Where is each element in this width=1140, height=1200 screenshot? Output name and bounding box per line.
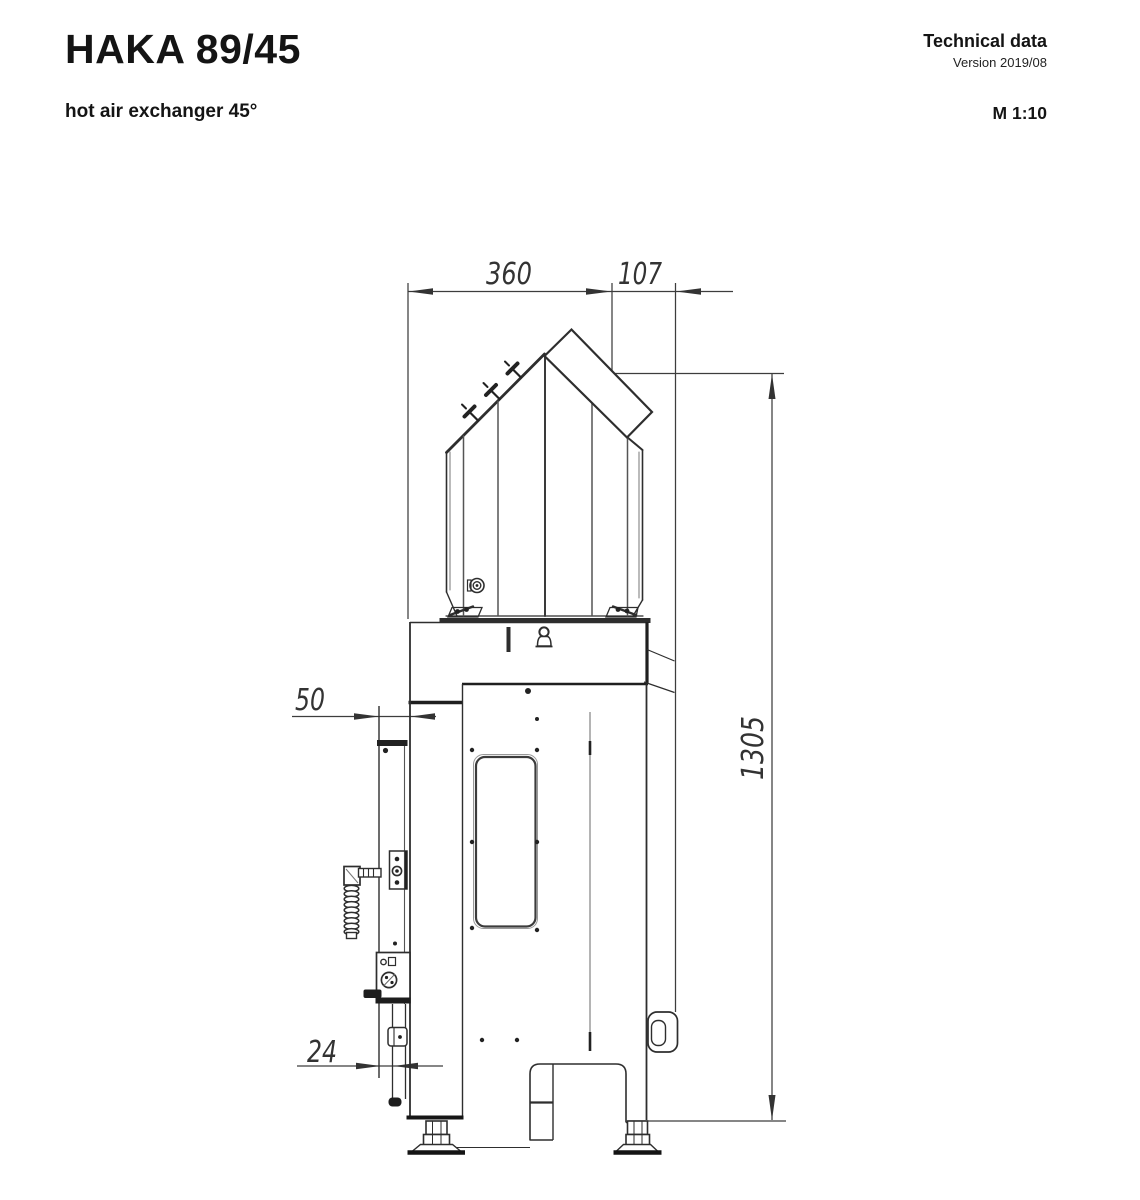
lower-bracket <box>364 953 411 1004</box>
nozzle-icon <box>462 405 478 421</box>
right-foot <box>614 1121 662 1153</box>
feet <box>408 1121 662 1153</box>
dim-label-360: 360 <box>486 257 532 292</box>
dim-label-50: 50 <box>295 683 325 718</box>
hood-side-fitting <box>468 579 485 593</box>
dim-label-1305: 1305 <box>736 716 771 780</box>
spring-coil <box>344 885 359 934</box>
side-fold-upper <box>647 650 675 662</box>
nozzle-icon <box>505 362 521 378</box>
base-inner-box <box>530 1064 553 1140</box>
hood-nozzles <box>462 362 521 421</box>
box-slot <box>507 627 511 652</box>
outlet-duct-body <box>545 330 653 438</box>
spring-handle <box>344 867 381 939</box>
door-panel <box>474 755 538 929</box>
technical-drawing: 360 107 50 24 1305 <box>0 0 1140 1200</box>
hood-left-slope <box>447 354 545 453</box>
left-foot <box>408 1121 466 1153</box>
chimney-stub <box>536 627 553 646</box>
dim-label-107: 107 <box>618 257 662 292</box>
hood-right-eave <box>627 437 643 450</box>
bracket-base <box>376 998 411 1004</box>
datasheet-page: HAKA 89/45 hot air exchanger 45° Technic… <box>0 0 1140 1200</box>
panel-screws <box>470 688 539 1042</box>
outlet-duct <box>545 330 653 438</box>
side-latch <box>648 1012 678 1052</box>
left-bracket-assembly <box>344 706 411 1107</box>
rail-top-bar <box>377 740 408 746</box>
side-fold-lower <box>644 682 675 693</box>
dim-label-24: 24 <box>307 1035 337 1070</box>
lower-rail-strip <box>388 1004 407 1107</box>
nozzle-icon <box>484 383 500 399</box>
bracket-handle <box>364 990 382 999</box>
